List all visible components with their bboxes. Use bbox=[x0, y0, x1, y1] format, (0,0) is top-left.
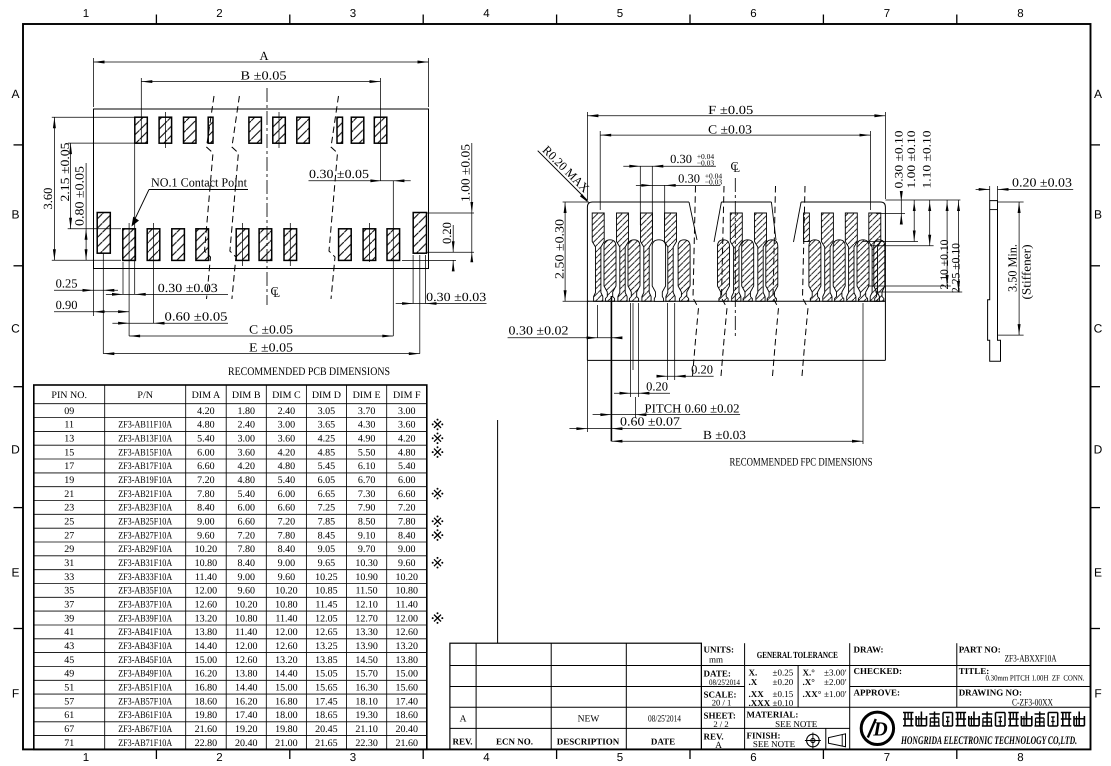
svg-text:9.70: 9.70 bbox=[358, 544, 376, 555]
svg-text:18.00: 18.00 bbox=[275, 710, 298, 721]
svg-text:17.40: 17.40 bbox=[235, 710, 258, 721]
svg-text:6.70: 6.70 bbox=[358, 475, 376, 486]
svg-text:9.65: 9.65 bbox=[318, 558, 336, 569]
svg-text:6.60: 6.60 bbox=[278, 503, 296, 514]
svg-text:ZF3-AB57F10A: ZF3-AB57F10A bbox=[118, 696, 173, 707]
svg-text:3.65: 3.65 bbox=[318, 420, 336, 431]
svg-text:31: 31 bbox=[64, 558, 74, 569]
svg-text:ZF3-AB45F10A: ZF3-AB45F10A bbox=[118, 655, 173, 666]
svg-text:4.25: 4.25 bbox=[318, 434, 336, 445]
svg-text:3.60: 3.60 bbox=[41, 188, 55, 210]
svg-text:.XX°: .XX° bbox=[803, 689, 822, 699]
svg-text:F: F bbox=[1094, 687, 1101, 701]
svg-text:REV.: REV. bbox=[452, 737, 472, 747]
svg-text:−0.03: −0.03 bbox=[705, 178, 723, 187]
svg-text:19.80: 19.80 bbox=[195, 710, 218, 721]
svg-text:B ±0.05: B ±0.05 bbox=[241, 69, 287, 83]
svg-text:19.80: 19.80 bbox=[275, 724, 298, 735]
svg-text:F: F bbox=[12, 687, 19, 701]
svg-text:19: 19 bbox=[64, 475, 74, 486]
svg-text:.XXX: .XXX bbox=[749, 698, 771, 708]
svg-text:0.30 ±0.03: 0.30 ±0.03 bbox=[426, 290, 486, 304]
svg-text:ZF3-AB61F10A: ZF3-AB61F10A bbox=[118, 710, 173, 721]
svg-text:14.50: 14.50 bbox=[355, 655, 378, 666]
svg-text:4: 4 bbox=[483, 8, 490, 20]
svg-text:7.25: 7.25 bbox=[318, 503, 336, 514]
svg-text:5: 5 bbox=[617, 752, 623, 764]
svg-text:61: 61 bbox=[64, 710, 74, 721]
svg-text:13.30: 13.30 bbox=[355, 627, 378, 638]
svg-text:HONGRIDA ELECTRONIC TECHNOLOGY: HONGRIDA ELECTRONIC TECHNOLOGY CO,LTD. bbox=[900, 735, 1077, 747]
svg-text:DIM D: DIM D bbox=[312, 390, 341, 401]
svg-text:3: 3 bbox=[350, 752, 356, 764]
svg-text:5.40: 5.40 bbox=[197, 434, 215, 445]
svg-text:12.05: 12.05 bbox=[315, 613, 338, 624]
svg-text:9.00: 9.00 bbox=[398, 544, 416, 555]
svg-text:11.40: 11.40 bbox=[235, 627, 257, 638]
svg-text:P/N: P/N bbox=[137, 390, 153, 401]
svg-text:5.50: 5.50 bbox=[358, 447, 376, 458]
svg-text:10.20: 10.20 bbox=[275, 586, 298, 597]
svg-text:10.85: 10.85 bbox=[315, 586, 338, 597]
svg-text:12.60: 12.60 bbox=[396, 627, 419, 638]
svg-text:ZF3-AB13F10A: ZF3-AB13F10A bbox=[118, 434, 173, 445]
svg-text:6.05: 6.05 bbox=[318, 475, 336, 486]
svg-text:7: 7 bbox=[884, 8, 890, 20]
svg-text:22.30: 22.30 bbox=[355, 738, 378, 749]
svg-text:13.20: 13.20 bbox=[275, 655, 298, 666]
svg-text:8.40: 8.40 bbox=[398, 530, 416, 541]
svg-text:7.20: 7.20 bbox=[237, 530, 255, 541]
svg-text:8.40: 8.40 bbox=[237, 558, 255, 569]
svg-text:20.40: 20.40 bbox=[235, 738, 258, 749]
svg-text:3.00: 3.00 bbox=[398, 406, 416, 417]
svg-text:SEE NOTE: SEE NOTE bbox=[775, 719, 818, 729]
svg-text:ZF3-AB19F10A: ZF3-AB19F10A bbox=[118, 475, 173, 486]
svg-text:MATERIAL:: MATERIAL: bbox=[747, 710, 799, 720]
svg-text:UNITS:: UNITS: bbox=[704, 645, 735, 655]
svg-text:11.50: 11.50 bbox=[356, 586, 378, 597]
svg-text:11.40: 11.40 bbox=[396, 600, 418, 611]
svg-text:9.00: 9.00 bbox=[237, 572, 255, 583]
svg-text:C: C bbox=[11, 322, 20, 336]
svg-text:13.90: 13.90 bbox=[355, 641, 378, 652]
svg-text:12.60: 12.60 bbox=[235, 655, 258, 666]
svg-text:DIM B: DIM B bbox=[232, 390, 261, 401]
svg-text:21.60: 21.60 bbox=[396, 738, 419, 749]
svg-text:A: A bbox=[11, 87, 19, 101]
svg-text:6.60: 6.60 bbox=[398, 489, 416, 500]
svg-text:51: 51 bbox=[64, 683, 74, 694]
svg-text:3.00: 3.00 bbox=[237, 434, 255, 445]
svg-text:17.45: 17.45 bbox=[315, 696, 338, 707]
svg-text:DRAWING NO:: DRAWING NO: bbox=[959, 688, 1022, 698]
svg-text:1.00 ±0.10: 1.00 ±0.10 bbox=[906, 130, 918, 188]
svg-text:12.65: 12.65 bbox=[315, 627, 338, 638]
svg-text:25: 25 bbox=[64, 517, 74, 528]
svg-text:RECOMMENDED FPC DIMENSIONS: RECOMMENDED FPC DIMENSIONS bbox=[730, 457, 873, 469]
svg-text:12.00: 12.00 bbox=[275, 627, 298, 638]
svg-text:10.80: 10.80 bbox=[275, 600, 298, 611]
svg-text:3.05: 3.05 bbox=[318, 406, 336, 417]
svg-text:0.20: 0.20 bbox=[691, 363, 713, 377]
svg-text:4.30: 4.30 bbox=[358, 420, 376, 431]
svg-text:18.65: 18.65 bbox=[315, 710, 338, 721]
svg-text:DATE: DATE bbox=[651, 737, 675, 747]
svg-text:3: 3 bbox=[350, 8, 356, 20]
svg-text:7.30: 7.30 bbox=[358, 489, 376, 500]
svg-text:0.30 ±0.10: 0.30 ±0.10 bbox=[893, 130, 905, 188]
svg-text:57: 57 bbox=[64, 696, 74, 707]
svg-text:12.00: 12.00 bbox=[235, 641, 258, 652]
svg-text:C ±0.05: C ±0.05 bbox=[249, 323, 293, 337]
svg-text:±3.00′: ±3.00′ bbox=[824, 667, 847, 677]
svg-text:4.20: 4.20 bbox=[197, 406, 215, 417]
svg-text:15.70: 15.70 bbox=[355, 669, 378, 680]
svg-text:15: 15 bbox=[64, 447, 74, 458]
svg-text:ZF3-AB67F10A: ZF3-AB67F10A bbox=[118, 724, 173, 735]
svg-text:0.20 ±0.03: 0.20 ±0.03 bbox=[1012, 175, 1072, 189]
svg-text:0.80 ±0.05: 0.80 ±0.05 bbox=[73, 166, 87, 226]
svg-text:PITCH 0.60 ±0.02: PITCH 0.60 ±0.02 bbox=[645, 402, 740, 416]
svg-text:D: D bbox=[1094, 443, 1103, 457]
svg-text:±0.10: ±0.10 bbox=[773, 698, 794, 708]
svg-text:ZF3-ABXXF10A: ZF3-ABXXF10A bbox=[1005, 654, 1058, 665]
svg-text:4.20: 4.20 bbox=[398, 434, 416, 445]
svg-text:0.20: 0.20 bbox=[440, 222, 454, 244]
svg-text:4.80: 4.80 bbox=[398, 447, 416, 458]
svg-text:6.00: 6.00 bbox=[278, 489, 296, 500]
svg-text:15.60: 15.60 bbox=[396, 683, 419, 694]
svg-text:12.70: 12.70 bbox=[355, 613, 378, 624]
svg-text:13: 13 bbox=[64, 434, 74, 445]
svg-text:37: 37 bbox=[64, 600, 74, 611]
svg-text:5: 5 bbox=[617, 8, 623, 20]
svg-text:15.00: 15.00 bbox=[195, 655, 218, 666]
svg-text:±1.00′: ±1.00′ bbox=[824, 689, 847, 699]
svg-text:6.00: 6.00 bbox=[398, 475, 416, 486]
svg-text:12.00: 12.00 bbox=[195, 586, 218, 597]
svg-text:PIN NO.: PIN NO. bbox=[51, 390, 87, 401]
svg-text:SEE NOTE: SEE NOTE bbox=[753, 739, 796, 749]
svg-text:0.20: 0.20 bbox=[646, 380, 668, 394]
svg-text:ZF3-AB37F10A: ZF3-AB37F10A bbox=[118, 600, 173, 611]
svg-text:RECOMMENDED PCB DIMENSIONS: RECOMMENDED PCB DIMENSIONS bbox=[228, 366, 390, 378]
svg-text:6: 6 bbox=[750, 8, 756, 20]
svg-text:DESCRIPTION: DESCRIPTION bbox=[557, 737, 620, 747]
svg-text:1.80: 1.80 bbox=[237, 406, 255, 417]
svg-text:ZF3-AB39F10A: ZF3-AB39F10A bbox=[118, 613, 173, 624]
svg-text:7.80: 7.80 bbox=[237, 544, 255, 555]
svg-text:7.20: 7.20 bbox=[278, 517, 296, 528]
svg-text:45: 45 bbox=[64, 655, 74, 666]
svg-text:3.50 Min.: 3.50 Min. bbox=[1006, 244, 1020, 292]
svg-text:7.90: 7.90 bbox=[358, 503, 376, 514]
svg-text:ZF3-AB33F10A: ZF3-AB33F10A bbox=[118, 572, 173, 583]
svg-text:PART NO:: PART NO: bbox=[959, 645, 1001, 655]
svg-text:10.90: 10.90 bbox=[355, 572, 378, 583]
svg-text:D: D bbox=[11, 443, 20, 457]
svg-text:8: 8 bbox=[1017, 8, 1023, 20]
svg-text:10.80: 10.80 bbox=[195, 558, 218, 569]
svg-text:.X: .X bbox=[749, 677, 758, 687]
svg-text:33: 33 bbox=[64, 572, 74, 583]
svg-text:10.25: 10.25 bbox=[315, 572, 338, 583]
svg-text:14.40: 14.40 bbox=[275, 669, 298, 680]
svg-text:09: 09 bbox=[64, 406, 74, 417]
svg-text:5.45: 5.45 bbox=[318, 461, 336, 472]
svg-text:ZF3-AB49F10A: ZF3-AB49F10A bbox=[118, 669, 173, 680]
svg-text:mm: mm bbox=[709, 655, 723, 665]
svg-text:X.°: X.° bbox=[803, 667, 816, 677]
svg-text:49: 49 bbox=[64, 669, 74, 680]
svg-text:16.20: 16.20 bbox=[235, 696, 258, 707]
svg-text:ZF3-AB71F10A: ZF3-AB71F10A bbox=[118, 738, 173, 749]
svg-text:C-ZF3-00XX: C-ZF3-00XX bbox=[1012, 698, 1054, 709]
svg-text:29: 29 bbox=[64, 544, 74, 555]
svg-text:DRAW:: DRAW: bbox=[854, 645, 884, 655]
svg-text:13.25: 13.25 bbox=[315, 641, 338, 652]
svg-text:19.30: 19.30 bbox=[355, 710, 378, 721]
svg-text:10.30: 10.30 bbox=[355, 558, 378, 569]
svg-text:21: 21 bbox=[64, 489, 74, 500]
svg-text:−0.03: −0.03 bbox=[697, 158, 715, 167]
svg-text:11.40: 11.40 bbox=[275, 613, 297, 624]
svg-text:±2.00′: ±2.00′ bbox=[824, 677, 847, 687]
svg-text:9.00: 9.00 bbox=[197, 517, 215, 528]
svg-text:18.60: 18.60 bbox=[396, 710, 419, 721]
svg-text:4: 4 bbox=[483, 752, 490, 764]
svg-text:1: 1 bbox=[83, 8, 89, 20]
svg-text:4.80: 4.80 bbox=[197, 420, 215, 431]
svg-text:7.80: 7.80 bbox=[398, 517, 416, 528]
svg-text:6.10: 6.10 bbox=[358, 461, 376, 472]
svg-text:9.10: 9.10 bbox=[358, 530, 376, 541]
svg-text:DIM F: DIM F bbox=[393, 390, 421, 401]
svg-text:10.80: 10.80 bbox=[396, 586, 419, 597]
svg-text:ZF3-AB17F10A: ZF3-AB17F10A bbox=[118, 461, 173, 472]
svg-text:4.80: 4.80 bbox=[237, 475, 255, 486]
svg-text:X.: X. bbox=[749, 667, 758, 677]
svg-text:12.00: 12.00 bbox=[396, 613, 419, 624]
svg-text:C ±0.03: C ±0.03 bbox=[708, 123, 752, 137]
svg-text:7.80: 7.80 bbox=[197, 489, 215, 500]
svg-text:15.65: 15.65 bbox=[315, 683, 338, 694]
svg-text:CHECKED:: CHECKED: bbox=[854, 666, 903, 676]
svg-text:0.30mm PITCH 1.00H ZF CONN.: 0.30mm PITCH 1.00H ZF CONN. bbox=[986, 674, 1085, 683]
svg-text:11.40: 11.40 bbox=[195, 572, 217, 583]
svg-text:4.90: 4.90 bbox=[358, 434, 376, 445]
svg-text:7.20: 7.20 bbox=[398, 503, 416, 514]
svg-text:10.80: 10.80 bbox=[235, 613, 258, 624]
svg-text:6.60: 6.60 bbox=[237, 517, 255, 528]
svg-text:21.00: 21.00 bbox=[275, 738, 298, 749]
svg-text:APPROVE:: APPROVE: bbox=[854, 688, 901, 698]
svg-text:14.40: 14.40 bbox=[235, 683, 258, 694]
svg-text:16.30: 16.30 bbox=[355, 683, 378, 694]
svg-text:13.85: 13.85 bbox=[315, 655, 338, 666]
svg-text:ZF3-AB31F10A: ZF3-AB31F10A bbox=[118, 558, 173, 569]
svg-text:15.05: 15.05 bbox=[315, 669, 338, 680]
svg-text:3.70: 3.70 bbox=[358, 406, 376, 417]
svg-text:20.40: 20.40 bbox=[396, 724, 419, 735]
svg-text:11.45: 11.45 bbox=[315, 600, 337, 611]
svg-text:8.40: 8.40 bbox=[197, 503, 215, 514]
svg-text:8.45: 8.45 bbox=[318, 530, 336, 541]
svg-text:4.80: 4.80 bbox=[278, 461, 296, 472]
svg-text:0.30: 0.30 bbox=[670, 152, 692, 166]
svg-text:9.60: 9.60 bbox=[197, 530, 215, 541]
svg-text:4.20: 4.20 bbox=[237, 461, 255, 472]
svg-text:GENERAL TOLERANCE: GENERAL TOLERANCE bbox=[757, 651, 838, 661]
svg-text:3.00: 3.00 bbox=[278, 420, 296, 431]
svg-text:ZF3-AB11F10A: ZF3-AB11F10A bbox=[118, 420, 173, 431]
svg-text:20.45: 20.45 bbox=[315, 724, 338, 735]
svg-text:14.40: 14.40 bbox=[195, 641, 218, 652]
svg-text:67: 67 bbox=[64, 724, 74, 735]
svg-text:9.60: 9.60 bbox=[398, 558, 416, 569]
svg-text:15.00: 15.00 bbox=[275, 683, 298, 694]
svg-text:A: A bbox=[460, 715, 467, 725]
svg-text:3.60: 3.60 bbox=[237, 447, 255, 458]
svg-text:13.80: 13.80 bbox=[195, 627, 218, 638]
svg-text:ZF3-AB23F10A: ZF3-AB23F10A bbox=[118, 503, 173, 514]
svg-text:±0.20: ±0.20 bbox=[773, 677, 794, 687]
svg-text:0.30: 0.30 bbox=[678, 171, 700, 185]
svg-text:DIM A: DIM A bbox=[192, 390, 221, 401]
svg-text:71: 71 bbox=[64, 738, 74, 749]
svg-text:13.80: 13.80 bbox=[235, 669, 258, 680]
svg-text:17.40: 17.40 bbox=[396, 696, 419, 707]
svg-text:ZF3-AB29F10A: ZF3-AB29F10A bbox=[118, 544, 173, 555]
svg-text:4.85: 4.85 bbox=[318, 447, 336, 458]
svg-text:NEW: NEW bbox=[578, 715, 600, 725]
svg-text:4.20: 4.20 bbox=[278, 447, 296, 458]
svg-text:1: 1 bbox=[83, 752, 89, 764]
svg-text:L: L bbox=[273, 288, 280, 300]
svg-text:12.10: 12.10 bbox=[355, 600, 378, 611]
svg-text:NO.1 Contact Point: NO.1 Contact Point bbox=[151, 176, 247, 190]
svg-text:6.60: 6.60 bbox=[197, 461, 215, 472]
svg-text:18.10: 18.10 bbox=[355, 696, 378, 707]
svg-text:3.60: 3.60 bbox=[398, 420, 416, 431]
svg-text:0.90: 0.90 bbox=[56, 298, 78, 312]
svg-text:ZF3-AB27F10A: ZF3-AB27F10A bbox=[118, 530, 173, 541]
svg-text:7.85: 7.85 bbox=[318, 517, 336, 528]
svg-text:27: 27 bbox=[64, 530, 74, 541]
svg-text:08/25'2014: 08/25'2014 bbox=[709, 678, 740, 687]
svg-text:5.40: 5.40 bbox=[237, 489, 255, 500]
svg-text:A: A bbox=[1094, 87, 1102, 101]
svg-text:15.00: 15.00 bbox=[396, 669, 419, 680]
svg-text:ZF3-AB25F10A: ZF3-AB25F10A bbox=[118, 517, 173, 528]
svg-text:0.60 ±0.05: 0.60 ±0.05 bbox=[165, 310, 228, 324]
svg-text:8: 8 bbox=[1017, 752, 1023, 764]
svg-text:35: 35 bbox=[64, 586, 74, 597]
svg-text:DIM E: DIM E bbox=[353, 390, 381, 401]
svg-text:6.65: 6.65 bbox=[318, 489, 336, 500]
svg-text:19.20: 19.20 bbox=[235, 724, 258, 735]
svg-text:13.20: 13.20 bbox=[195, 613, 218, 624]
svg-text:(Stiffener): (Stiffener) bbox=[1020, 245, 1034, 300]
svg-text:3.60: 3.60 bbox=[278, 434, 296, 445]
svg-text:23: 23 bbox=[64, 503, 74, 514]
svg-text:22.80: 22.80 bbox=[195, 738, 218, 749]
svg-text:1.00 ±0.05: 1.00 ±0.05 bbox=[459, 144, 473, 202]
svg-text:11: 11 bbox=[64, 420, 74, 431]
svg-text:21.10: 21.10 bbox=[355, 724, 378, 735]
svg-text:41: 41 bbox=[64, 627, 74, 638]
svg-text:12.60: 12.60 bbox=[195, 600, 218, 611]
svg-text:10.20: 10.20 bbox=[235, 600, 258, 611]
svg-text:8.40: 8.40 bbox=[278, 544, 296, 555]
svg-text:ZF3-AB41F10A: ZF3-AB41F10A bbox=[118, 627, 173, 638]
svg-text:ZF3-AB21F10A: ZF3-AB21F10A bbox=[118, 489, 173, 500]
svg-text:21.65: 21.65 bbox=[315, 738, 338, 749]
svg-text:16.20: 16.20 bbox=[195, 669, 218, 680]
svg-text:E: E bbox=[1094, 566, 1102, 580]
svg-text:2.50 ±0.30: 2.50 ±0.30 bbox=[553, 219, 567, 279]
svg-text:10.20: 10.20 bbox=[396, 572, 419, 583]
svg-text:13.80: 13.80 bbox=[396, 655, 419, 666]
svg-text:ECN NO.: ECN NO. bbox=[496, 737, 533, 747]
svg-text:10.20: 10.20 bbox=[195, 544, 218, 555]
svg-text:08/25'2014: 08/25'2014 bbox=[648, 715, 681, 725]
svg-text:16.80: 16.80 bbox=[275, 696, 298, 707]
svg-text:8.50: 8.50 bbox=[358, 517, 376, 528]
svg-text:B: B bbox=[1094, 208, 1102, 222]
svg-text:21.60: 21.60 bbox=[195, 724, 218, 735]
svg-text:ZF3-AB35F10A: ZF3-AB35F10A bbox=[118, 586, 173, 597]
svg-text:L: L bbox=[733, 163, 740, 175]
svg-text:12.60: 12.60 bbox=[275, 641, 298, 652]
svg-text:9.60: 9.60 bbox=[237, 586, 255, 597]
svg-text:A: A bbox=[259, 49, 268, 63]
svg-text:2: 2 bbox=[216, 8, 222, 20]
svg-text:7: 7 bbox=[884, 752, 890, 764]
svg-text:17: 17 bbox=[64, 461, 74, 472]
svg-text:6.00: 6.00 bbox=[197, 447, 215, 458]
svg-text:9.60: 9.60 bbox=[278, 572, 296, 583]
svg-text:2: 2 bbox=[216, 752, 222, 764]
svg-text:18.60: 18.60 bbox=[195, 696, 218, 707]
svg-text:2.40: 2.40 bbox=[278, 406, 296, 417]
svg-text:.X°: .X° bbox=[803, 677, 816, 687]
svg-text:13.20: 13.20 bbox=[396, 641, 419, 652]
svg-text:39: 39 bbox=[64, 613, 74, 624]
svg-text:0.25: 0.25 bbox=[56, 277, 78, 291]
svg-text:0.60 ±0.07: 0.60 ±0.07 bbox=[620, 415, 680, 429]
svg-text:E ±0.05: E ±0.05 bbox=[249, 340, 293, 354]
svg-text:DIM C: DIM C bbox=[272, 390, 301, 401]
svg-text:0.30 ±0.05: 0.30 ±0.05 bbox=[309, 167, 369, 181]
svg-text:2.10 ±0.10: 2.10 ±0.10 bbox=[939, 239, 951, 289]
svg-text:±0.25: ±0.25 bbox=[773, 667, 794, 677]
svg-text:B: B bbox=[11, 208, 19, 222]
svg-text:F ±0.05: F ±0.05 bbox=[708, 103, 753, 117]
svg-text:6: 6 bbox=[750, 752, 756, 764]
svg-text:1.10 ±0.10: 1.10 ±0.10 bbox=[922, 130, 934, 188]
svg-text:9.00: 9.00 bbox=[278, 558, 296, 569]
svg-text:0.30 ±0.03: 0.30 ±0.03 bbox=[158, 281, 218, 295]
svg-text:E: E bbox=[11, 566, 19, 580]
svg-text:7.20: 7.20 bbox=[197, 475, 215, 486]
svg-text:2.15 ±0.05: 2.15 ±0.05 bbox=[58, 143, 72, 202]
svg-text:C: C bbox=[1094, 322, 1103, 336]
svg-text:2.40: 2.40 bbox=[237, 420, 255, 431]
svg-text:ZF3-AB15F10A: ZF3-AB15F10A bbox=[118, 447, 173, 458]
svg-text:2.25 ±0.10: 2.25 ±0.10 bbox=[950, 243, 962, 293]
